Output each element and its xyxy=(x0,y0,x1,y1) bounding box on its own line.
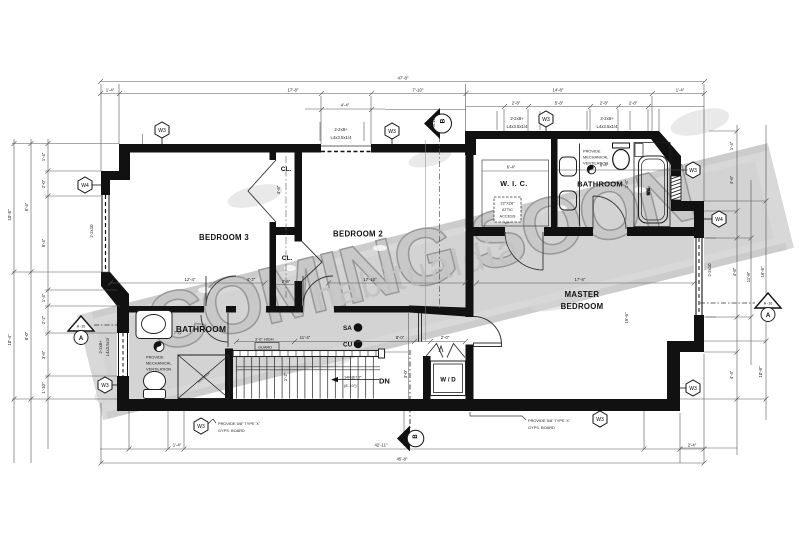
svg-text:2-2x8+: 2-2x8+ xyxy=(510,116,524,121)
svg-text:B: B xyxy=(413,434,419,439)
svg-text:A -10: A -10 xyxy=(764,302,772,306)
svg-text:MASTER: MASTER xyxy=(565,290,600,299)
svg-text:47'-8": 47'-8" xyxy=(398,76,409,81)
svg-text:14R@7.7": 14R@7.7" xyxy=(344,375,362,380)
svg-text:1'-6": 1'-6" xyxy=(624,179,629,188)
svg-text:3'-6" HIGH: 3'-6" HIGH xyxy=(255,337,274,342)
svg-text:SA: SA xyxy=(343,325,352,332)
svg-text:PROVIDE 5/8" TYPE 'X': PROVIDE 5/8" TYPE 'X' xyxy=(528,418,570,423)
svg-text:1'-2": 1'-2" xyxy=(283,372,288,381)
svg-text:6'-4": 6'-4" xyxy=(41,238,46,247)
svg-text:2'-6": 2'-6" xyxy=(282,279,291,284)
svg-text:17'-6": 17'-6" xyxy=(575,277,586,282)
svg-text:12'-4": 12'-4" xyxy=(185,277,196,282)
svg-text:1'-4": 1'-4" xyxy=(106,88,115,93)
svg-text:2-2x10: 2-2x10 xyxy=(707,263,712,277)
svg-text:MECHANICAL: MECHANICAL xyxy=(146,361,172,366)
svg-text:2-2x8+: 2-2x8+ xyxy=(334,127,348,132)
svg-text:PROVIDE 5/8" TYPE 'X': PROVIDE 5/8" TYPE 'X' xyxy=(218,421,260,426)
svg-text:17'-10": 17'-10" xyxy=(363,277,377,282)
svg-text:(8'-10"): (8'-10") xyxy=(344,383,357,388)
svg-text:W3: W3 xyxy=(689,386,697,392)
svg-text:CU: CU xyxy=(343,342,353,349)
svg-text:2'-0": 2'-0" xyxy=(441,335,450,340)
svg-text:8'-4": 8'-4" xyxy=(600,163,609,168)
svg-text:W. I. C.: W. I. C. xyxy=(500,179,528,188)
svg-text:L4x3.5x1/4: L4x3.5x1/4 xyxy=(596,124,618,129)
svg-text:2'-8": 2'-8" xyxy=(512,101,521,106)
svg-text:22"X28": 22"X28" xyxy=(500,201,515,206)
svg-text:3'-6": 3'-6" xyxy=(41,350,46,359)
svg-text:4'-6": 4'-6" xyxy=(729,175,734,184)
svg-text:2-2x8+: 2-2x8+ xyxy=(600,116,614,121)
svg-text:2-2x10: 2-2x10 xyxy=(89,224,94,238)
svg-text:1'-4": 1'-4" xyxy=(173,443,182,448)
svg-text:2'-0": 2'-0" xyxy=(41,179,46,188)
svg-text:1'-10": 1'-10" xyxy=(41,382,46,393)
svg-text:8'-0": 8'-0" xyxy=(24,331,29,340)
svg-text:2'-8": 2'-8" xyxy=(600,101,609,106)
svg-text:W / D: W / D xyxy=(440,377,456,384)
svg-text:TUB: TUB xyxy=(646,188,650,196)
svg-text:BEDROOM 3: BEDROOM 3 xyxy=(199,233,249,242)
svg-text:3'-0": 3'-0" xyxy=(403,369,408,378)
svg-text:GYPS. BOARD: GYPS. BOARD xyxy=(218,428,245,433)
svg-text:10'-8": 10'-8" xyxy=(758,366,763,377)
svg-text:A: A xyxy=(79,336,84,342)
svg-text:7'-10": 7'-10" xyxy=(413,88,424,93)
svg-text:W3: W3 xyxy=(542,117,550,123)
svg-text:W3: W3 xyxy=(158,128,166,134)
svg-text:ACCESS: ACCESS xyxy=(500,214,516,219)
svg-text:MECHANICAL: MECHANICAL xyxy=(583,155,609,160)
svg-text:45'-8": 45'-8" xyxy=(397,457,408,462)
svg-text:W3: W3 xyxy=(388,129,396,135)
svg-text:W3: W3 xyxy=(596,417,604,423)
svg-text:A-11: A-11 xyxy=(405,434,409,442)
svg-text:A-11: A-11 xyxy=(431,118,436,127)
svg-text:8'-0": 8'-0" xyxy=(396,335,405,340)
svg-text:15'-6": 15'-6" xyxy=(624,312,629,323)
svg-text:W4: W4 xyxy=(81,183,89,189)
svg-text:BEDROOM 2: BEDROOM 2 xyxy=(333,230,383,239)
svg-text:4'-6": 4'-6" xyxy=(276,185,281,194)
svg-text:11'-8": 11'-8" xyxy=(746,271,751,282)
svg-text:L4x3.5x1/4: L4x3.5x1/4 xyxy=(330,135,352,140)
svg-text:L4x3.5x1/: L4x3.5x1/ xyxy=(105,337,110,356)
svg-text:4'-8": 4'-8" xyxy=(732,267,737,276)
svg-text:4'-4": 4'-4" xyxy=(341,103,350,108)
svg-text:4'-4": 4'-4" xyxy=(729,370,734,379)
svg-text:W3: W3 xyxy=(689,168,697,174)
svg-text:2-2x8+: 2-2x8+ xyxy=(98,340,103,354)
svg-text:PROVIDE: PROVIDE xyxy=(146,355,164,360)
svg-text:2'-2": 2'-2" xyxy=(41,315,46,324)
svg-text:7'-6": 7'-6" xyxy=(174,331,183,336)
svg-text:1'-4": 1'-4" xyxy=(676,88,685,93)
svg-text:W3: W3 xyxy=(197,424,205,430)
svg-text:17'-8": 17'-8" xyxy=(288,88,299,93)
svg-text:CL.: CL. xyxy=(282,255,293,262)
svg-text:16'-8": 16'-8" xyxy=(760,266,765,277)
svg-text:L4x3.5x1/4: L4x3.5x1/4 xyxy=(506,124,528,129)
svg-text:10'-8": 10'-8" xyxy=(7,209,12,220)
svg-text:5'-8": 5'-8" xyxy=(555,101,564,106)
svg-text:BATHROOM: BATHROOM xyxy=(577,180,623,189)
svg-text:W4: W4 xyxy=(715,217,723,223)
svg-text:GYPS. BOARD: GYPS. BOARD xyxy=(528,425,555,430)
svg-text:B: B xyxy=(440,118,447,123)
svg-text:PROVIDE: PROVIDE xyxy=(583,149,601,154)
svg-text:6'-4": 6'-4" xyxy=(507,165,516,170)
svg-text:VENTILATION: VENTILATION xyxy=(146,367,171,372)
svg-text:42'-11": 42'-11" xyxy=(374,443,387,448)
svg-text:BEDROOM: BEDROOM xyxy=(561,302,604,311)
svg-text:11'-4": 11'-4" xyxy=(300,335,311,340)
svg-text:GUARD: GUARD xyxy=(258,345,272,350)
svg-text:ATTIC: ATTIC xyxy=(502,207,513,212)
svg-text:14'-8": 14'-8" xyxy=(553,88,564,93)
svg-text:10'-4": 10'-4" xyxy=(7,334,12,345)
svg-text:A: A xyxy=(766,313,771,319)
svg-text:BATHROOM: BATHROOM xyxy=(176,324,226,334)
svg-text:1'-4": 1'-4" xyxy=(41,152,46,161)
svg-text:W3: W3 xyxy=(101,383,109,389)
svg-text:DN: DN xyxy=(379,376,390,385)
svg-text:4'-2": 4'-2" xyxy=(247,277,256,282)
svg-text:1'-4": 1'-4" xyxy=(729,141,734,150)
svg-text:2'-8": 2'-8" xyxy=(629,101,638,106)
svg-text:6'-4": 6'-4" xyxy=(24,202,29,211)
svg-text:2'-4": 2'-4" xyxy=(688,443,697,448)
svg-text:A -10: A -10 xyxy=(77,325,85,329)
svg-text:1'-4": 1'-4" xyxy=(41,293,46,302)
